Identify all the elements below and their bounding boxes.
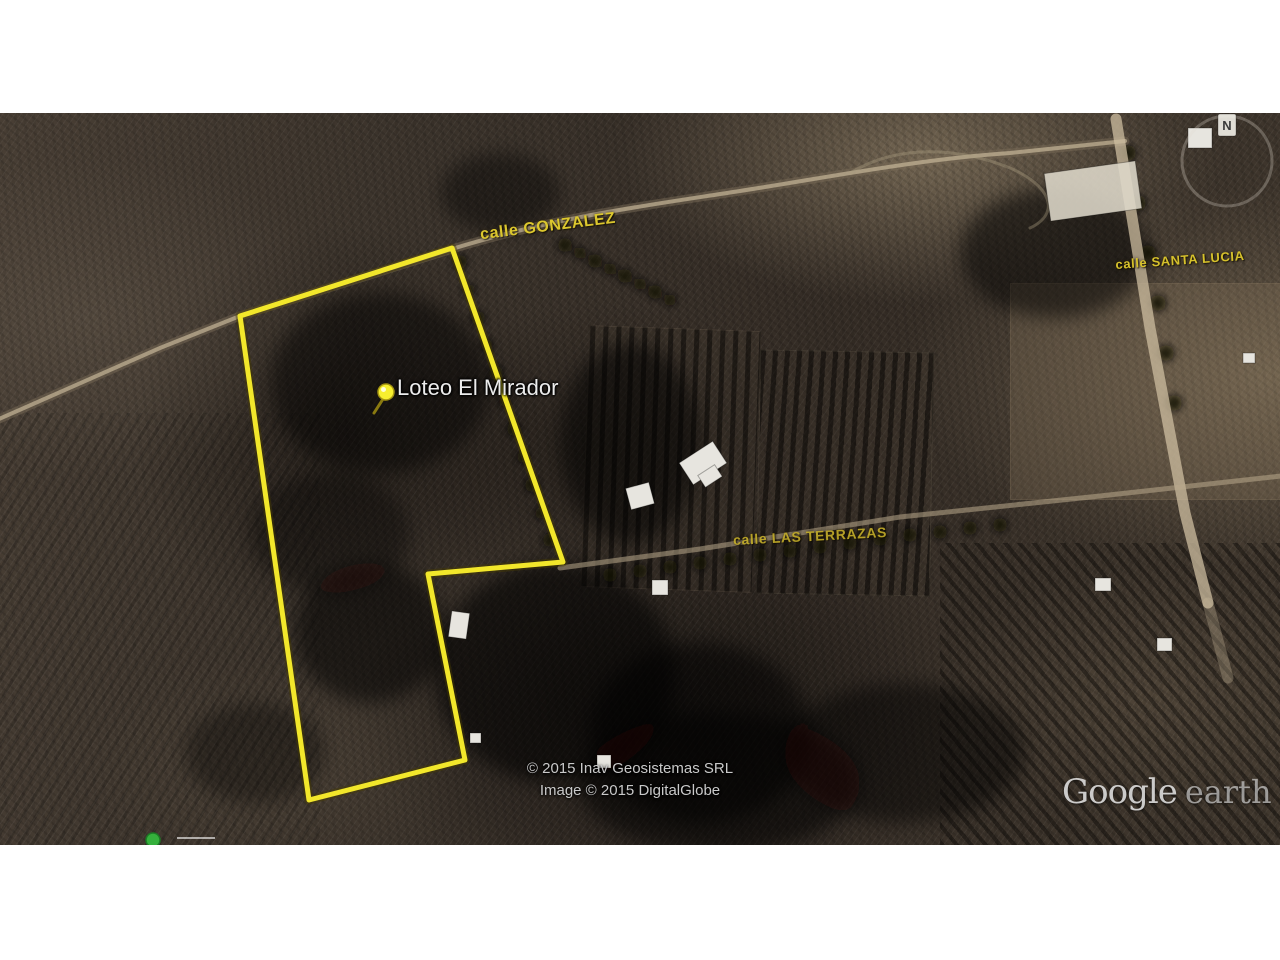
compass-ring[interactable]: N (1182, 114, 1272, 206)
attribution-line-1: © 2015 Inav Geosistemas SRL (527, 758, 733, 780)
map-overlay-graphics: N (0, 113, 1280, 845)
attribution-line-2: Image © 2015 DigitalGlobe (527, 780, 733, 802)
green-placemark-icon[interactable] (146, 833, 215, 845)
compass-north-label: N (1222, 118, 1231, 133)
google-earth-logo: Googleearth (1062, 772, 1272, 812)
google-logo-text: Google (1062, 772, 1177, 812)
satellite-map-view[interactable]: N calle GONZALEZ calle SANTA LUCIA calle… (0, 113, 1280, 845)
calle-gonzalez-road (0, 141, 1125, 423)
placemark-label: Loteo El Mirador (397, 375, 558, 401)
vegetation-patches (185, 153, 1150, 845)
earth-logo-text: earth (1185, 773, 1272, 811)
imagery-attribution: © 2015 Inav Geosistemas SRL Image © 2015… (527, 758, 733, 802)
